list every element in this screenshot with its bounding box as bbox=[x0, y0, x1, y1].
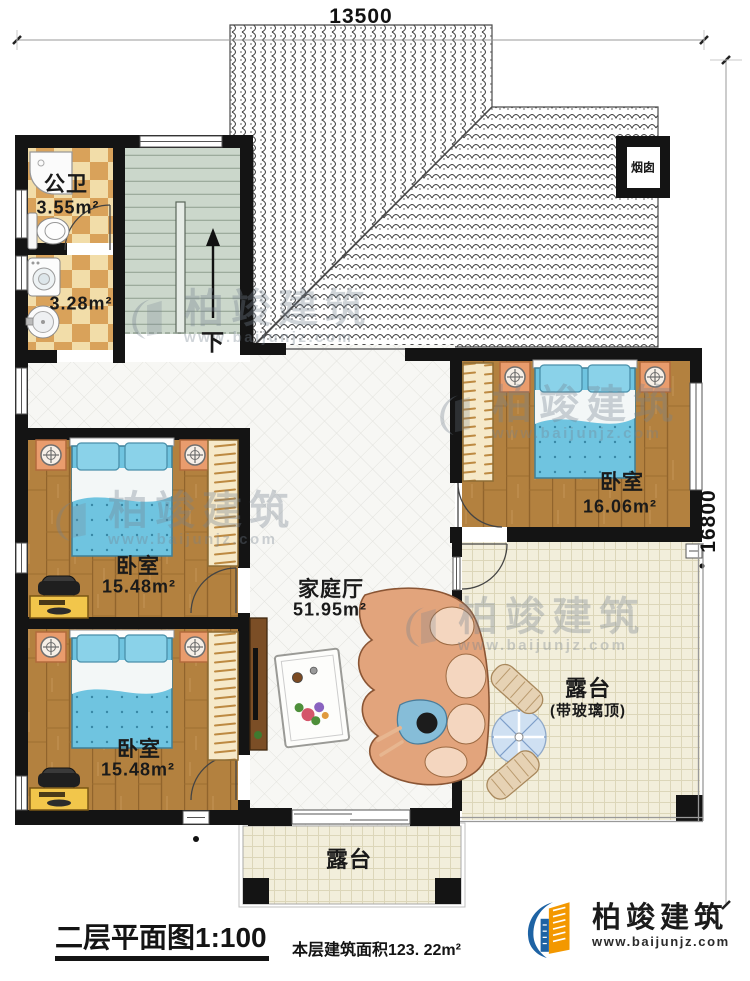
floorplan-canvas: 公卫 3.55m² 3.28m² 卧室 16.06m² 卧室 15.48m² 卧… bbox=[0, 0, 750, 981]
floor-area-note: 本层建筑面积123. 22m² bbox=[292, 936, 461, 960]
tv-cabinet bbox=[250, 618, 267, 750]
bedroom-tr-area: 16.06m² bbox=[583, 497, 657, 518]
bathroom-label: 公卫 bbox=[44, 168, 88, 198]
wardrobe bbox=[208, 632, 238, 760]
bedroom-bl-area: 15.48m² bbox=[101, 760, 175, 781]
bed bbox=[70, 438, 174, 556]
plan-title-text: 二层平面图 bbox=[55, 922, 195, 953]
terrace-right-note: (带玻璃顶) bbox=[550, 700, 626, 721]
hall-floor-left bbox=[28, 362, 250, 428]
family-hall-area: 51.95m² bbox=[293, 600, 367, 621]
terrace-bottom-label: 露台 bbox=[326, 842, 372, 874]
window-marker-bottom bbox=[183, 811, 209, 824]
nightstand bbox=[500, 362, 530, 392]
roof bbox=[230, 25, 658, 347]
nightstand bbox=[180, 440, 210, 470]
window-laundry bbox=[16, 256, 27, 290]
bed bbox=[533, 360, 637, 478]
bedroom-tr-label: 卧室 bbox=[600, 466, 644, 496]
bedroom-bl-label: 卧室 bbox=[117, 733, 161, 763]
family-hall-label: 家庭厅 bbox=[298, 573, 364, 603]
nightstand bbox=[640, 362, 670, 392]
sliding-door bbox=[292, 810, 410, 824]
dimension-right: 16800 bbox=[697, 489, 721, 552]
window-bedroom-tr bbox=[690, 383, 702, 490]
plan-scale-text: 1:100 bbox=[195, 922, 267, 953]
plan-title: 二层平面图1:100 bbox=[55, 916, 267, 956]
sofa bbox=[359, 588, 489, 785]
window-top-stairs bbox=[140, 136, 222, 147]
window-bedroom-bl bbox=[16, 776, 27, 810]
coffee-table bbox=[275, 648, 350, 747]
nightstand bbox=[36, 632, 66, 662]
bedroom-ml-label: 卧室 bbox=[116, 550, 160, 580]
brand-logo-icon bbox=[522, 894, 584, 958]
nightstand bbox=[180, 632, 210, 662]
window-bathroom bbox=[16, 190, 27, 238]
terrace-right-label: 露台 bbox=[565, 671, 611, 703]
bed bbox=[70, 630, 174, 748]
brand-name: 柏竣建筑 bbox=[592, 903, 730, 935]
title-underline bbox=[55, 956, 269, 961]
brand-site: www.baijunjz.com bbox=[592, 934, 730, 949]
dimension-top: 13500 bbox=[329, 5, 392, 29]
washing-machine bbox=[28, 258, 60, 296]
nightstand bbox=[36, 440, 66, 470]
laundry-area: 3.28m² bbox=[49, 294, 112, 315]
window-hall bbox=[16, 368, 27, 414]
wardrobe bbox=[463, 363, 493, 481]
bathroom-area: 3.55m² bbox=[36, 198, 99, 219]
window-bedroom-ml bbox=[16, 543, 27, 573]
brand-logo: 柏竣建筑 www.baijunjz.com bbox=[522, 894, 730, 958]
chimney-label: 烟囱 bbox=[631, 159, 655, 176]
wardrobe bbox=[208, 440, 238, 566]
stairs-down-label: 下 bbox=[201, 323, 225, 357]
bedroom-ml-area: 15.48m² bbox=[102, 577, 176, 598]
